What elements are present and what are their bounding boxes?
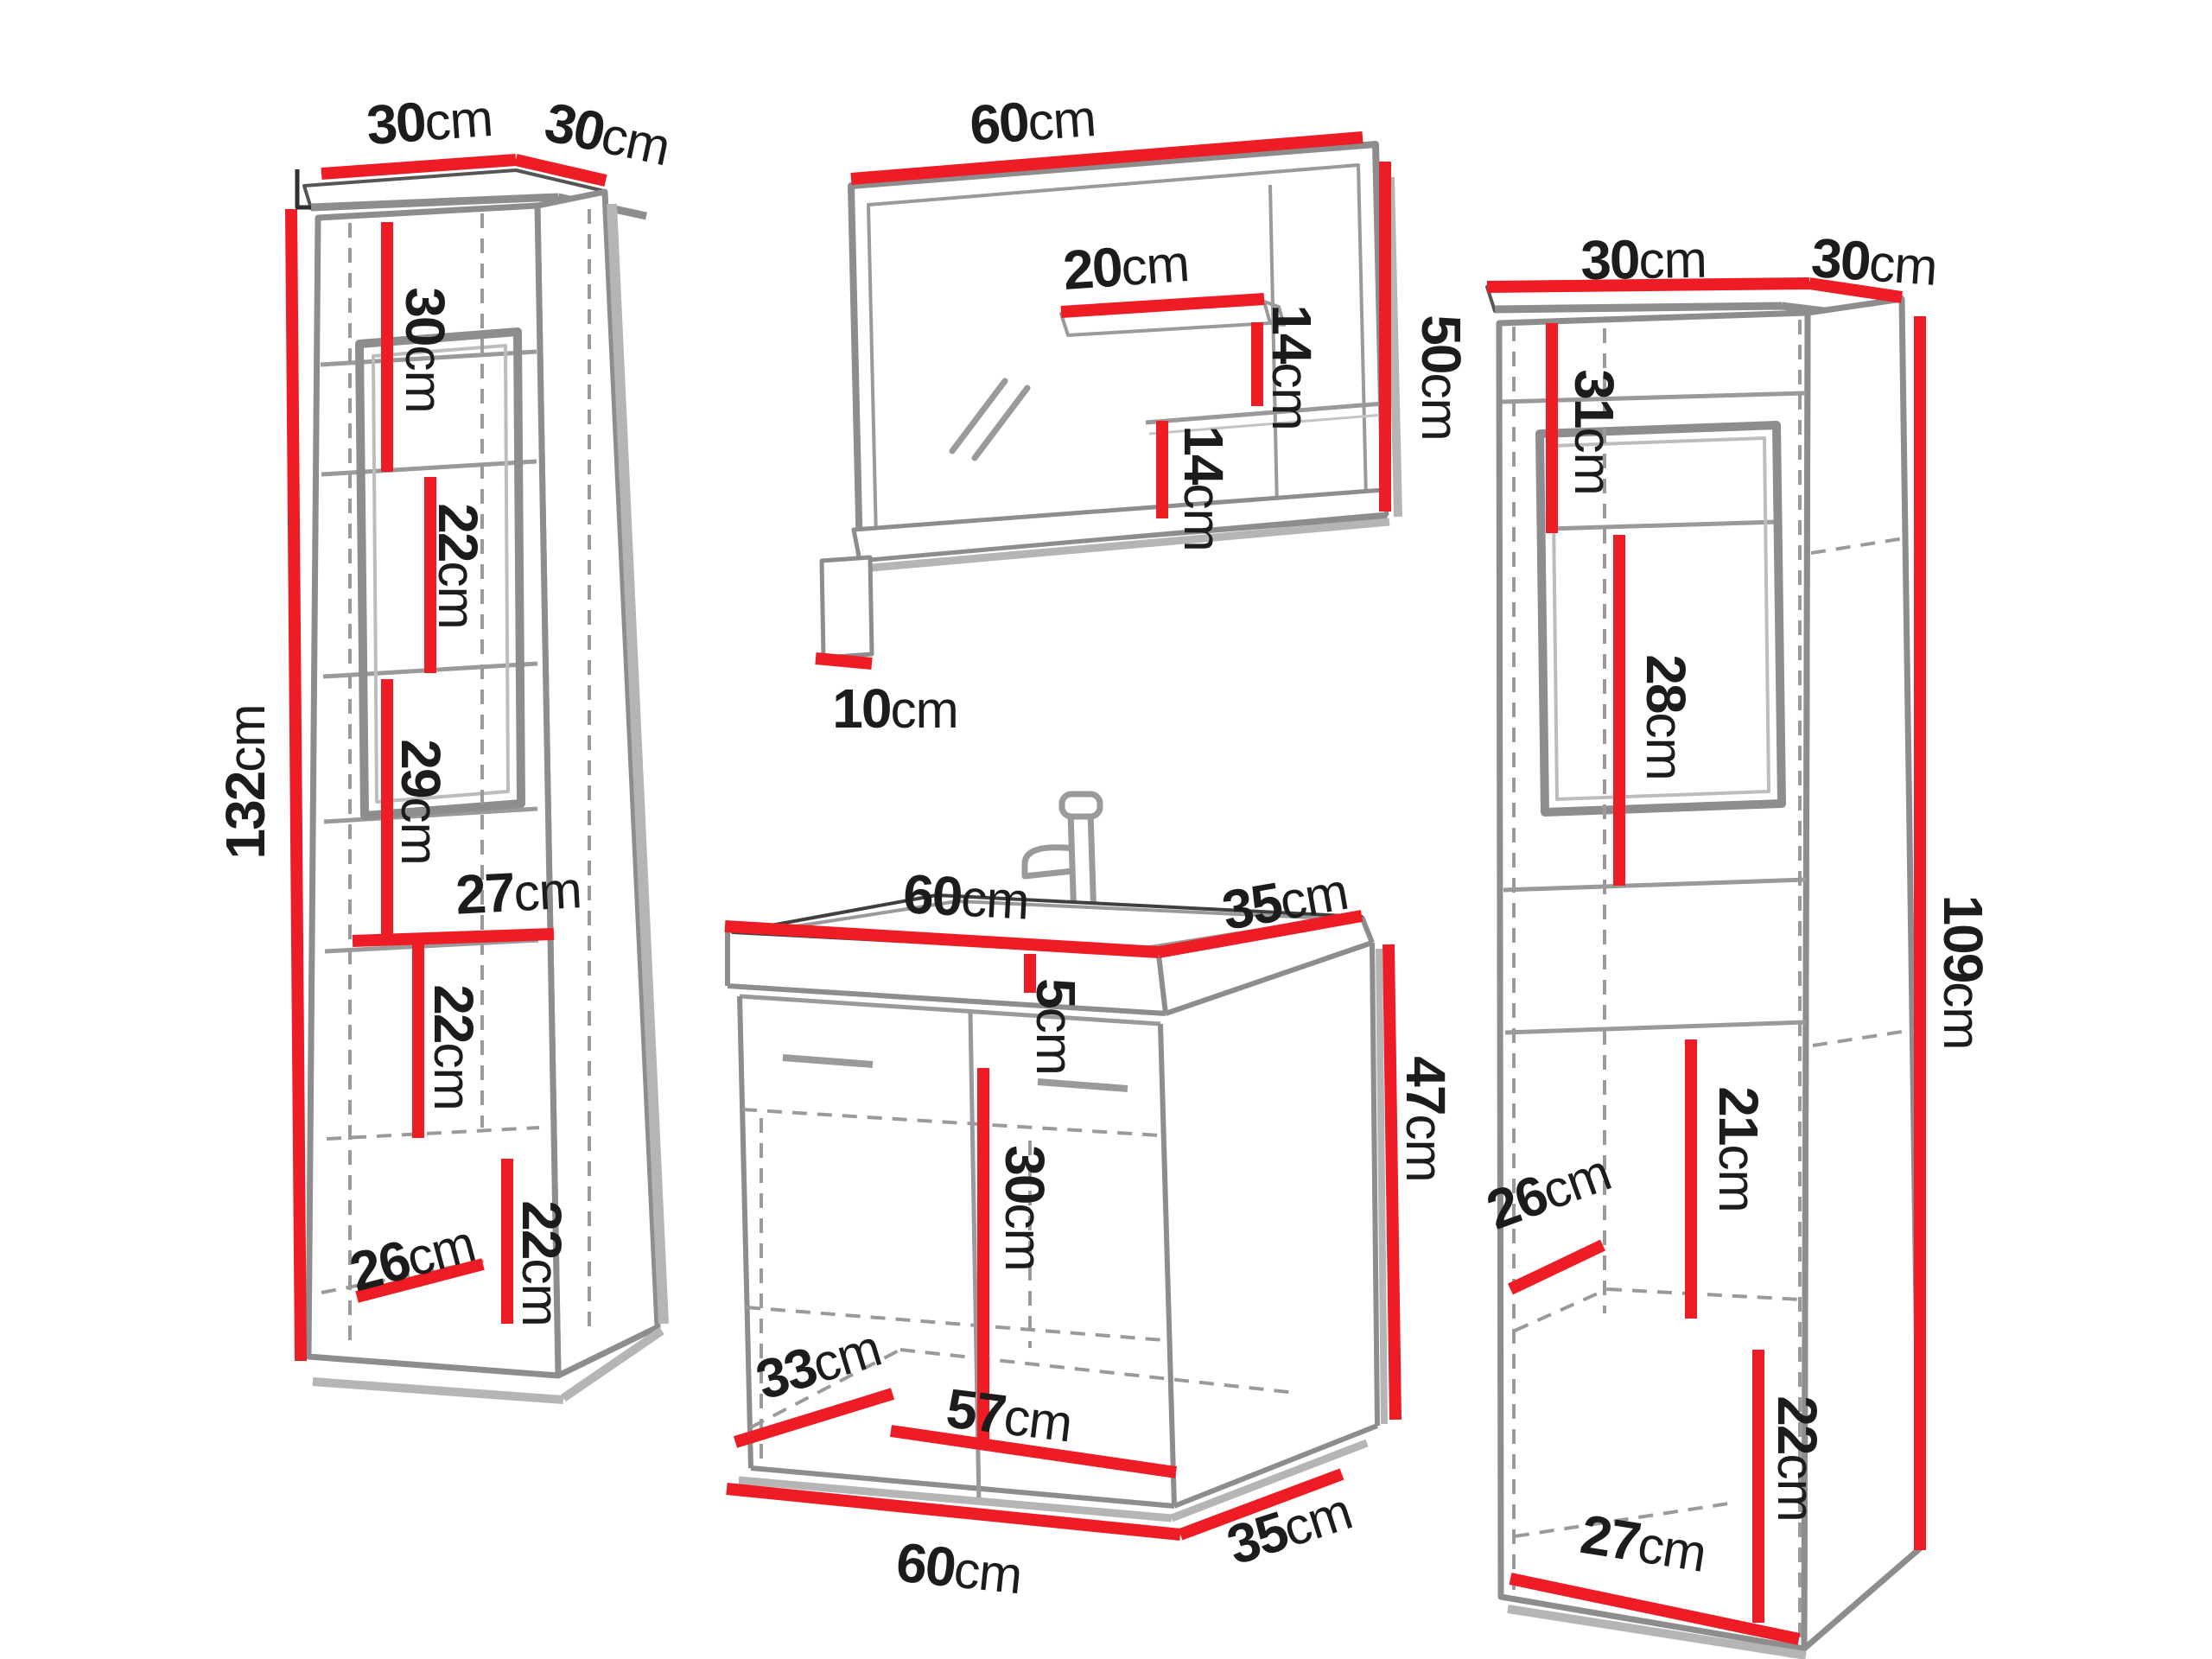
tall-cabinet-right-linework bbox=[1487, 283, 1920, 1656]
tall-cabinet-left-linework bbox=[291, 160, 664, 1400]
mirror-linework bbox=[816, 137, 1398, 664]
furniture-linework bbox=[0, 0, 2212, 1659]
diagram-canvas: 30cm 30cm 30cm 22cm 29cm 27cm 22cm 22cm … bbox=[0, 0, 2212, 1659]
sink-vanity-linework bbox=[725, 794, 1395, 1535]
